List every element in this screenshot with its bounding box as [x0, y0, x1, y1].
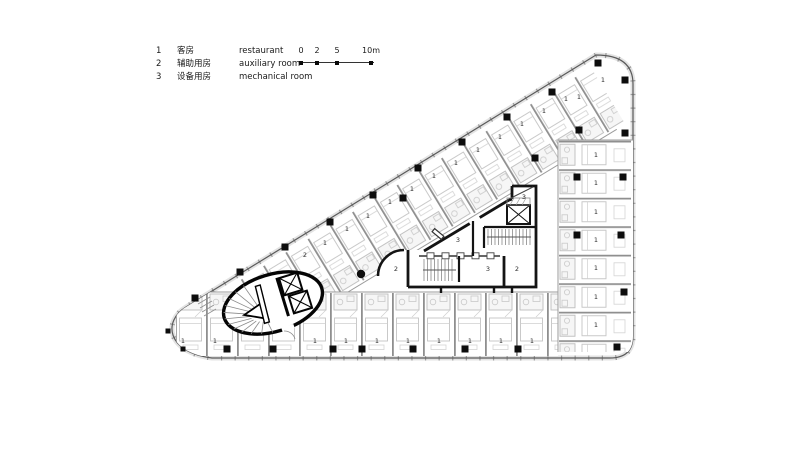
- room-number: 1: [313, 337, 317, 345]
- column: [462, 346, 469, 353]
- column: [166, 329, 171, 334]
- column: [574, 232, 581, 239]
- column: [595, 60, 602, 67]
- room-number: 1: [530, 337, 534, 345]
- column: [532, 155, 539, 162]
- room-number: 1: [594, 179, 598, 187]
- column: [359, 346, 366, 353]
- room-number: 1: [594, 208, 598, 216]
- room-number: 1: [499, 337, 503, 345]
- room-number: 1: [476, 146, 480, 154]
- floor-plan-drawing: 1111111111111111111111111111111223323: [0, 0, 800, 476]
- room-number: 1: [388, 198, 392, 206]
- round-column: [357, 270, 365, 278]
- room-number: 1: [594, 151, 598, 159]
- room-number: 3: [456, 236, 460, 244]
- column: [282, 244, 289, 251]
- room-number: 1: [594, 264, 598, 272]
- column: [620, 174, 627, 181]
- room-number: 1: [542, 107, 546, 115]
- room-number: 1: [345, 225, 349, 233]
- column: [622, 77, 629, 84]
- column: [618, 232, 625, 239]
- room-number: 1: [432, 172, 436, 180]
- room-number: 1: [577, 93, 581, 101]
- round-columns: [357, 270, 365, 278]
- column: [549, 89, 556, 96]
- column: [327, 219, 334, 226]
- column: [621, 289, 628, 296]
- room-number: 1: [406, 337, 410, 345]
- column: [270, 346, 277, 353]
- room-number: 3: [522, 193, 526, 201]
- room-number: 1: [181, 337, 185, 345]
- room-number: 1: [344, 337, 348, 345]
- room-number: 1: [520, 120, 524, 128]
- room-number: 1: [594, 236, 598, 244]
- room-number: 1: [375, 337, 379, 345]
- column: [459, 139, 466, 146]
- column: [370, 192, 377, 199]
- room-number: 1: [213, 337, 217, 345]
- column: [415, 165, 422, 172]
- column: [410, 346, 417, 353]
- column: [224, 346, 231, 353]
- room-number: 1: [498, 133, 502, 141]
- column: [574, 174, 581, 181]
- column: [237, 269, 244, 276]
- room-number: 1: [437, 337, 441, 345]
- floor-plan-page: 1 客房 restaurant 2 辅助用房 auxiliary room 3 …: [0, 0, 800, 476]
- column: [576, 127, 583, 134]
- column: [400, 195, 407, 202]
- column: [622, 130, 629, 137]
- room-number: 2: [394, 265, 398, 273]
- column: [504, 114, 511, 121]
- column: [181, 347, 186, 352]
- room-number: 1: [564, 95, 568, 103]
- column: [192, 295, 199, 302]
- column: [330, 346, 337, 353]
- room-number: 1: [366, 212, 370, 220]
- room-number: 1: [594, 293, 598, 301]
- column: [614, 344, 621, 351]
- room-number: 1: [594, 321, 598, 329]
- column: [515, 346, 522, 353]
- room-number: 2: [515, 265, 519, 273]
- room-number: 3: [486, 265, 490, 273]
- room-number: 1: [323, 239, 327, 247]
- room-number: 1: [601, 76, 605, 84]
- room-number: 1: [468, 337, 472, 345]
- room-number: 1: [410, 185, 414, 193]
- room-number: 2: [303, 251, 307, 259]
- room-number: 1: [454, 159, 458, 167]
